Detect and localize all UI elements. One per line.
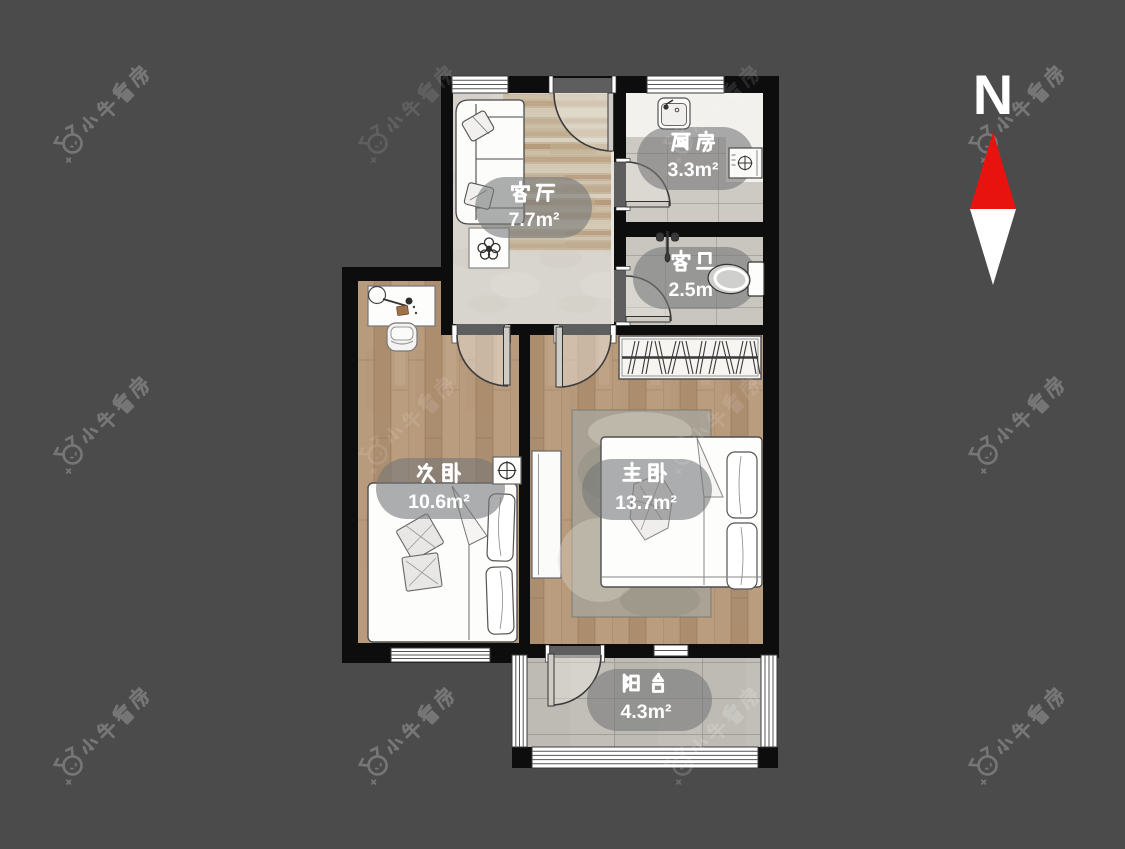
svg-text:N: N <box>973 63 1013 126</box>
svg-text:13.7m²: 13.7m² <box>615 492 677 514</box>
svg-text:4.3m²: 4.3m² <box>621 701 672 723</box>
svg-text:7.7m²: 7.7m² <box>509 209 560 231</box>
svg-text:3.3m²: 3.3m² <box>668 159 719 181</box>
svg-text:10.6m²: 10.6m² <box>408 491 470 513</box>
